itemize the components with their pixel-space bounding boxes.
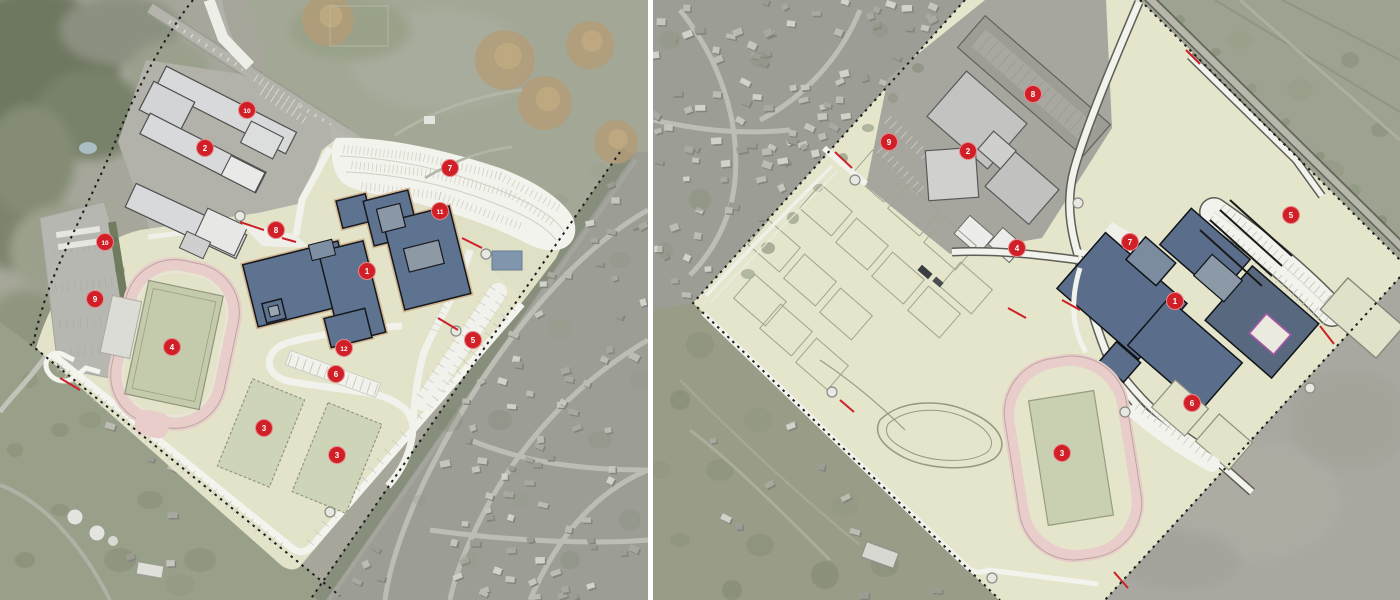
svg-text:2: 2 bbox=[966, 147, 971, 156]
svg-text:7: 7 bbox=[1128, 238, 1133, 247]
svg-text:10: 10 bbox=[101, 240, 109, 247]
svg-text:6: 6 bbox=[1190, 399, 1195, 408]
svg-text:12: 12 bbox=[340, 346, 348, 353]
svg-text:3: 3 bbox=[262, 424, 267, 433]
svg-text:10: 10 bbox=[243, 108, 251, 115]
svg-text:2: 2 bbox=[203, 144, 208, 153]
svg-text:5: 5 bbox=[471, 336, 476, 345]
svg-text:4: 4 bbox=[1015, 244, 1020, 253]
svg-text:3: 3 bbox=[1060, 449, 1065, 458]
svg-text:11: 11 bbox=[437, 209, 444, 216]
svg-text:9: 9 bbox=[93, 295, 98, 304]
svg-text:8: 8 bbox=[274, 226, 279, 235]
svg-text:3: 3 bbox=[335, 451, 340, 460]
svg-text:6: 6 bbox=[334, 370, 339, 379]
svg-text:5: 5 bbox=[1289, 211, 1294, 220]
svg-text:8: 8 bbox=[1031, 90, 1036, 99]
svg-text:1: 1 bbox=[365, 267, 370, 276]
svg-text:1: 1 bbox=[1173, 297, 1178, 306]
svg-text:7: 7 bbox=[448, 164, 453, 173]
svg-text:4: 4 bbox=[170, 343, 175, 352]
svg-text:9: 9 bbox=[887, 138, 892, 147]
